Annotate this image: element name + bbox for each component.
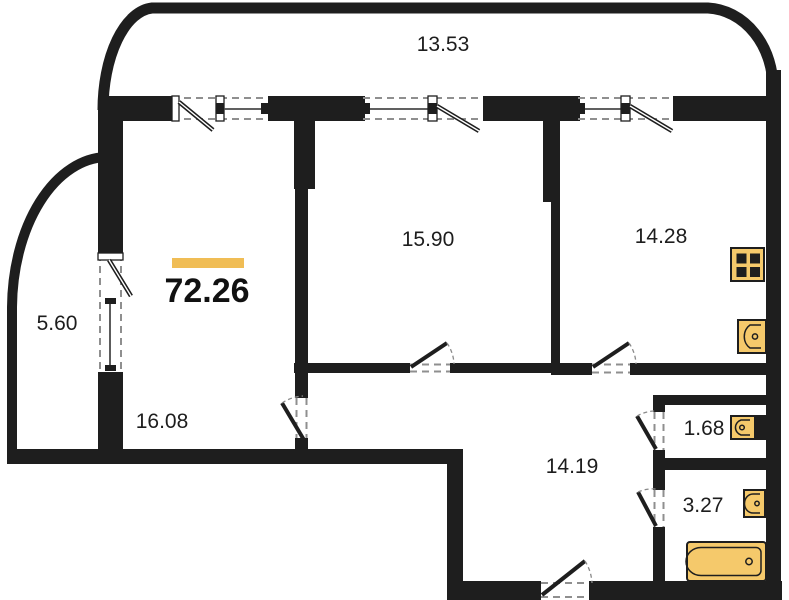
door-kitchen <box>586 343 636 375</box>
wc-sink-icon <box>731 416 755 439</box>
walls <box>7 70 782 600</box>
stove-icon <box>731 248 764 281</box>
door-wc <box>637 411 664 450</box>
balcony-outline-top <box>103 8 773 128</box>
door-entrance <box>535 561 595 598</box>
kitchen-sink-icon <box>738 320 766 353</box>
total-area-badge: 72.26 <box>164 258 249 310</box>
floorplan: 13.53 15.90 14.28 5.60 16.08 14.19 1.68 … <box>0 0 789 600</box>
floorplan-canvas: 13.53 15.90 14.28 5.60 16.08 14.19 1.68 … <box>0 0 789 600</box>
bath-sink-icon <box>744 490 765 517</box>
window-living-left <box>98 253 131 372</box>
total-area-value: 72.26 <box>164 272 249 310</box>
area-label-wc: 1.68 <box>684 417 725 440</box>
area-label-bathroom: 3.27 <box>683 494 724 517</box>
area-label-hallway: 14.19 <box>546 455 599 478</box>
area-label-kitchen: 14.28 <box>635 225 688 248</box>
area-label-living: 16.08 <box>136 410 189 433</box>
balcony-outline-left <box>12 157 106 453</box>
window-kitchen <box>578 96 673 131</box>
total-area-accent-bar <box>172 258 244 268</box>
area-label-room-main: 15.90 <box>402 228 455 251</box>
door-bathroom <box>638 489 664 527</box>
bathtub-icon <box>686 542 766 581</box>
area-label-balcony-left: 5.60 <box>37 312 78 335</box>
area-label-balcony-top: 13.53 <box>417 33 470 56</box>
window-living-top <box>172 96 268 130</box>
window-room-main <box>363 96 483 131</box>
door-living <box>282 396 307 440</box>
door-room-main <box>404 343 456 373</box>
